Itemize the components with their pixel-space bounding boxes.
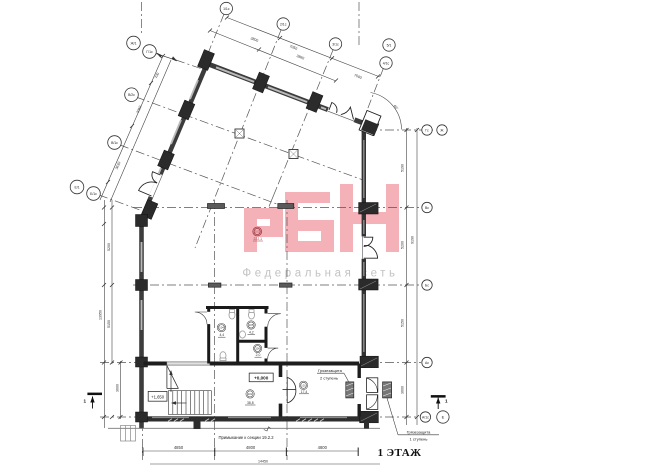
svg-text:Б/1с: Б/1с xyxy=(90,192,97,196)
svg-text:3/1с: 3/1с xyxy=(332,42,339,46)
svg-text:13950: 13950 xyxy=(99,310,103,320)
svg-text:В/2с: В/2с xyxy=(128,93,135,97)
svg-text:2 ступень: 2 ступень xyxy=(320,375,338,380)
svg-text:1 ступень: 1 ступень xyxy=(410,437,428,442)
svg-text:Бс: Бс xyxy=(425,283,429,287)
svg-text:5200: 5200 xyxy=(107,243,111,251)
svg-text:104: 104 xyxy=(219,326,224,330)
svg-text:5200: 5200 xyxy=(401,241,405,249)
svg-text:38,8: 38,8 xyxy=(247,401,254,405)
svg-text:1: 1 xyxy=(445,399,448,404)
svg-text:+1,650: +1,650 xyxy=(151,395,165,400)
svg-text:2/1с: 2/1с xyxy=(280,22,287,26)
svg-text:3600: 3600 xyxy=(116,384,120,392)
svg-text:222,1: 222,1 xyxy=(254,237,263,241)
svg-text:Грязезащита: Грязезащита xyxy=(407,430,432,435)
svg-text:2,0: 2,0 xyxy=(256,353,261,357)
svg-text:Вс: Вс xyxy=(425,206,429,210)
svg-text:4800: 4800 xyxy=(318,445,328,450)
svg-text:4800: 4800 xyxy=(246,445,256,450)
svg-text:5/1: 5/1 xyxy=(387,43,392,47)
svg-text:А/1с: А/1с xyxy=(422,415,429,419)
svg-text:9190: 9190 xyxy=(411,236,415,244)
svg-text:Е: Е xyxy=(442,415,445,420)
svg-text:17,4: 17,4 xyxy=(301,390,308,394)
svg-text:4,4: 4,4 xyxy=(219,333,224,337)
svg-text:1: 1 xyxy=(84,399,87,404)
svg-text:106: 106 xyxy=(255,347,260,351)
svg-text:Примыкание к секции 19.2.2: Примыкание к секции 19.2.2 xyxy=(218,435,274,440)
svg-text:Е/1: Е/1 xyxy=(74,185,79,189)
svg-text:102: 102 xyxy=(248,392,253,396)
svg-text:В/1с: В/1с xyxy=(111,141,118,145)
svg-text:1/1с: 1/1с xyxy=(223,7,230,11)
svg-text:4,2: 4,2 xyxy=(249,331,254,335)
svg-text:Федеральная сеть: Федеральная сеть xyxy=(242,268,398,280)
svg-text:5150: 5150 xyxy=(107,320,111,328)
svg-text:101: 101 xyxy=(301,383,306,387)
svg-text:4850: 4850 xyxy=(174,445,184,450)
svg-text:+0,000: +0,000 xyxy=(254,376,269,381)
svg-text:Ас: Ас xyxy=(425,361,429,365)
svg-text:Грязезащита: Грязезащита xyxy=(318,368,343,373)
svg-text:103: 103 xyxy=(255,230,260,234)
svg-text:14450: 14450 xyxy=(258,459,268,463)
svg-text:5190: 5190 xyxy=(401,164,405,172)
svg-text:Гс: Гс xyxy=(425,128,429,132)
svg-text:Ж/1: Ж/1 xyxy=(131,42,137,46)
svg-text:105: 105 xyxy=(249,323,254,327)
svg-text:4/1с: 4/1с xyxy=(383,61,390,65)
svg-text:5150: 5150 xyxy=(401,319,405,327)
svg-text:Г/1с: Г/1с xyxy=(146,50,153,54)
svg-text:1 ЭТАЖ: 1 ЭТАЖ xyxy=(378,447,422,459)
svg-text:3600: 3600 xyxy=(401,386,405,394)
